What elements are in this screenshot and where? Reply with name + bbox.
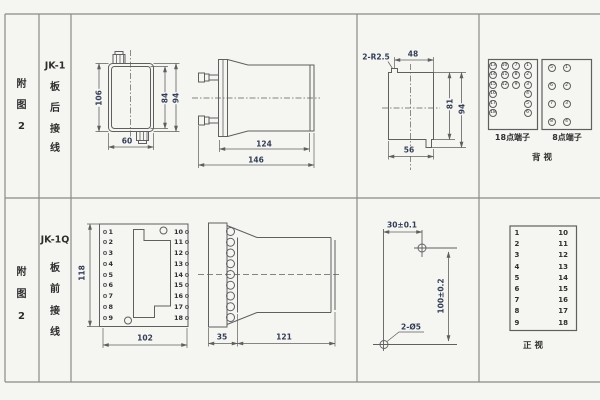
figure-label-char: 2	[18, 312, 25, 322]
plate-terminal-num-1: 1	[109, 228, 114, 236]
plate-terminal-num-14: 14	[171, 271, 183, 279]
list-terminal-num-18: 18	[551, 319, 568, 328]
figure-label-char: 2	[18, 122, 25, 132]
plate-terminal-dot-13	[185, 262, 189, 266]
terminal-18pt-15: 15	[489, 81, 497, 89]
plate-terminal-num-5: 5	[109, 271, 114, 279]
wiring-label-char: 板	[50, 264, 60, 274]
dim-side2-plate-thickness: 35	[216, 333, 228, 341]
plate-terminal-dot-10	[185, 230, 189, 234]
terminal-18pt-12: 12	[501, 81, 509, 89]
figure-label-char: 图	[17, 290, 27, 300]
plate-terminal-dot-3	[103, 251, 107, 255]
drawing-lineart	[0, 0, 600, 400]
dim-plate-width: 102	[136, 334, 154, 342]
list-terminal-num-3: 3	[515, 251, 520, 260]
plate-terminal-dot-1	[103, 230, 107, 234]
plate-terminal-dot-17	[185, 305, 189, 309]
dim-side-body-length: 124	[255, 140, 273, 148]
front-view-label: 正 视	[523, 341, 543, 350]
plate-terminal-dot-11	[185, 240, 189, 244]
dim-cutout-top-width: 48	[407, 50, 419, 58]
terminal-8pt-label: 8点端子	[552, 134, 582, 142]
plate-terminal-dot-2	[103, 240, 107, 244]
list-terminal-num-9: 9	[515, 319, 520, 328]
plate-terminal-dot-16	[185, 294, 189, 298]
list-terminal-num-16: 16	[551, 296, 568, 305]
terminal-8pt-1: 1	[563, 64, 571, 72]
terminal-18pt-14: 14	[489, 71, 497, 79]
terminal-18pt-18: 18	[489, 109, 497, 117]
list-terminal-num-14: 14	[551, 274, 568, 283]
terminal-18pt-2: 2	[524, 71, 532, 79]
wiring-label-char: 接	[50, 125, 60, 135]
terminal-18pt-1: 1	[524, 62, 532, 70]
panel-cutout-view	[382, 57, 466, 170]
dim-plan-outer-height: 94	[172, 91, 180, 103]
terminal-18pt-3: 3	[524, 81, 532, 89]
plate-terminal-dot-4	[103, 262, 107, 266]
plate-terminal-dot-5	[103, 273, 107, 277]
jk1-side-view	[192, 60, 320, 169]
terminal-8pt-3: 3	[563, 100, 571, 108]
wiring-label-char: 后	[50, 104, 60, 114]
figure-label-char: 附	[17, 80, 27, 90]
plate-terminal-num-3: 3	[109, 249, 114, 257]
terminal-18pt-5: 5	[524, 100, 532, 108]
terminal-8pt-8: 8	[548, 118, 556, 126]
plate-terminal-num-13: 13	[171, 260, 183, 268]
dim-plate-height: 118	[78, 264, 86, 282]
terminal-8pt-2: 2	[563, 82, 571, 90]
terminal-8pt-7: 7	[548, 100, 556, 108]
terminal-18pt-13: 13	[489, 62, 497, 70]
terminal-8pt-6: 6	[548, 82, 556, 90]
plate-terminal-dot-15	[185, 283, 189, 287]
plate-terminal-num-2: 2	[109, 238, 114, 246]
rear-view-label: 背 视	[532, 153, 552, 162]
plate-terminal-num-11: 11	[171, 238, 183, 246]
rear-terminal-boxes	[489, 60, 592, 130]
terminal-18pt-4: 4	[524, 90, 532, 98]
plate-terminal-num-16: 16	[171, 292, 183, 300]
list-terminal-num-4: 4	[515, 263, 520, 272]
plate-terminal-num-9: 9	[109, 314, 114, 322]
terminal-18pt-7: 7	[512, 62, 520, 70]
plate-terminal-num-17: 17	[171, 303, 183, 311]
dim-drill-horizontal-spacing: 30±0.1	[386, 221, 418, 229]
list-terminal-num-17: 17	[551, 307, 568, 316]
plate-terminal-num-7: 7	[109, 292, 114, 300]
list-terminal-num-5: 5	[515, 274, 520, 283]
wiring-label-char: 接	[50, 307, 60, 317]
dim-cutout-inner-height: 81	[446, 98, 454, 110]
figure-label-char: 图	[17, 101, 27, 111]
plate-terminal-num-12: 12	[171, 249, 183, 257]
dim-side2-body-length: 121	[275, 333, 293, 341]
dim-cutout-bottom-width: 56	[403, 146, 415, 154]
dim-cutout-outer-height: 94	[458, 103, 466, 115]
jk1q-side-view	[198, 223, 341, 347]
figure-label-char: 附	[17, 268, 27, 278]
list-terminal-num-13: 13	[551, 263, 568, 272]
terminal-18pt-6: 6	[524, 109, 532, 117]
terminal-18pt-16: 16	[489, 90, 497, 98]
list-terminal-num-15: 15	[551, 285, 568, 294]
dim-side-total-length: 146	[247, 156, 265, 164]
wiring-label-char: 线	[50, 328, 60, 338]
dim-plan-height: 106	[95, 89, 103, 107]
plate-terminal-dot-18	[185, 316, 189, 320]
list-terminal-num-11: 11	[551, 240, 568, 249]
model-label-jk1: JK-1	[45, 61, 66, 71]
plate-terminal-num-10: 10	[171, 228, 183, 236]
list-terminal-num-7: 7	[515, 296, 520, 305]
plate-terminal-num-8: 8	[109, 303, 114, 311]
list-terminal-num-1: 1	[515, 229, 520, 238]
terminal-18pt-label: 18点端子	[495, 134, 530, 142]
model-label-jk1q: JK-1Q	[41, 235, 70, 245]
wiring-label-char: 板	[50, 83, 60, 93]
dim-plan-inner-height: 84	[161, 91, 169, 103]
terminal-18pt-8: 8	[512, 71, 520, 79]
list-terminal-num-6: 6	[515, 285, 520, 294]
dim-drill-vertical-spacing: 100±0.2	[437, 277, 445, 314]
plate-terminal-num-4: 4	[109, 260, 114, 268]
dim-plan-width: 60	[121, 137, 133, 145]
list-terminal-num-8: 8	[515, 307, 520, 316]
wiring-label-char: 线	[50, 144, 60, 154]
terminal-18pt-10: 10	[501, 62, 509, 70]
terminal-18pt-11: 11	[501, 71, 509, 79]
technical-drawing-sheet: 附 图 2 JK-1 板 后 接 线 附 图 2 JK-1Q 板 前 接 线 1…	[0, 0, 600, 400]
plate-terminal-dot-6	[103, 283, 107, 287]
wiring-label-char: 前	[50, 285, 60, 295]
terminal-18pt-9: 9	[512, 81, 520, 89]
list-terminal-num-2: 2	[515, 240, 520, 249]
dim-drill-hole-spec: 2-Ø5	[400, 323, 422, 331]
plate-terminal-dot-12	[185, 251, 189, 255]
dim-cutout-corner-radius: 2-R2.5	[361, 53, 390, 61]
plate-terminal-num-18: 18	[171, 314, 183, 322]
list-terminal-num-10: 10	[551, 229, 568, 238]
plate-terminal-dot-8	[103, 305, 107, 309]
terminal-18pt-17: 17	[489, 100, 497, 108]
plate-terminal-num-15: 15	[171, 281, 183, 289]
terminal-8pt-4: 4	[563, 118, 571, 126]
terminal-8pt-5: 5	[548, 64, 556, 72]
plate-terminal-dot-9	[103, 316, 107, 320]
plate-terminal-dot-14	[185, 273, 189, 277]
plate-terminal-dot-7	[103, 294, 107, 298]
plate-terminal-num-6: 6	[109, 281, 114, 289]
list-terminal-num-12: 12	[551, 251, 568, 260]
